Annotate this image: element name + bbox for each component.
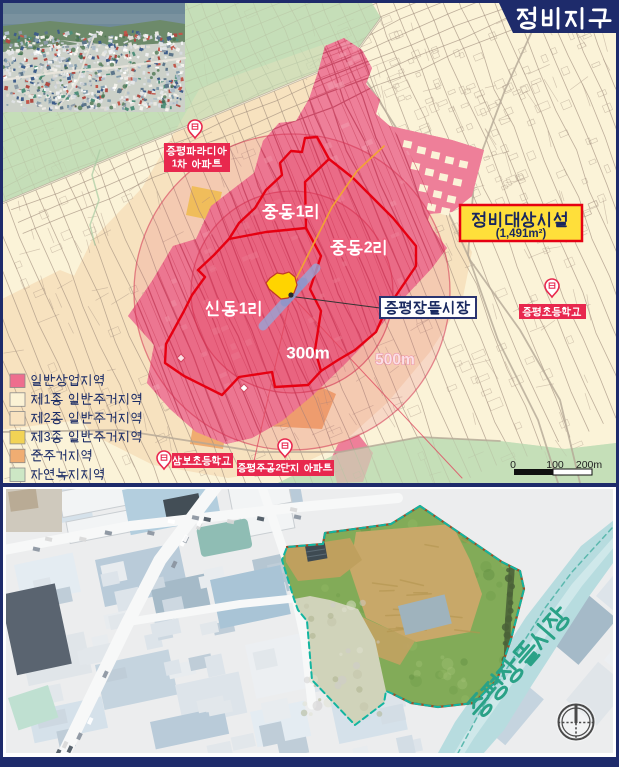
svg-text:2: 2 [276,463,281,474]
svg-text:500m: 500m [375,352,415,369]
svg-text:3: 3 [44,430,51,444]
svg-text:1: 1 [172,159,178,170]
svg-text:1: 1 [296,204,305,221]
svg-text:2: 2 [364,240,373,257]
svg-text:1: 1 [239,301,248,318]
svg-text:2: 2 [44,411,51,425]
svg-text:1: 1 [44,392,51,406]
svg-text:(1,491m²): (1,491m²) [496,228,547,240]
svg-text:300m: 300m [286,344,329,363]
